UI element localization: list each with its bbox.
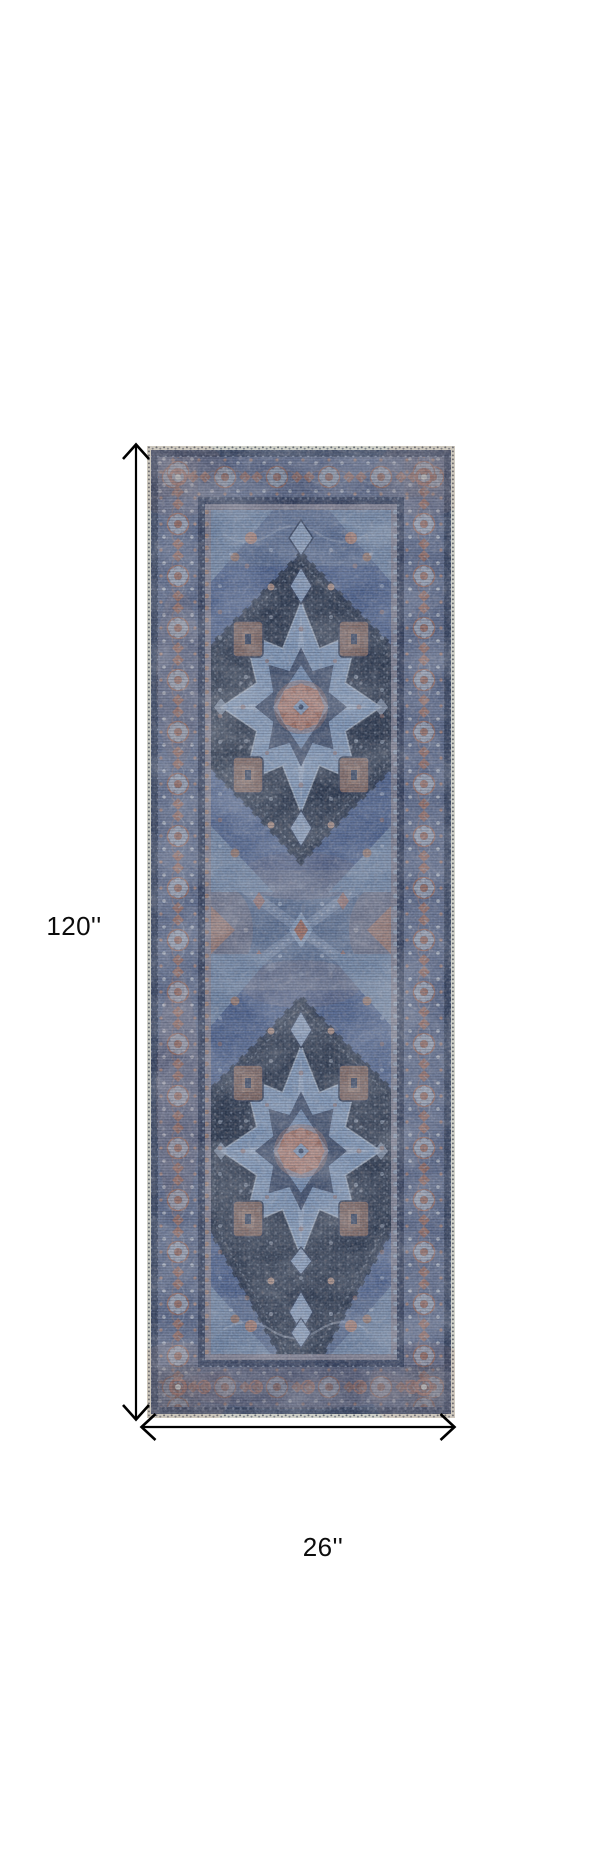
svg-text:26'': 26'' bbox=[303, 1532, 343, 1562]
svg-text:120'': 120'' bbox=[46, 911, 101, 941]
